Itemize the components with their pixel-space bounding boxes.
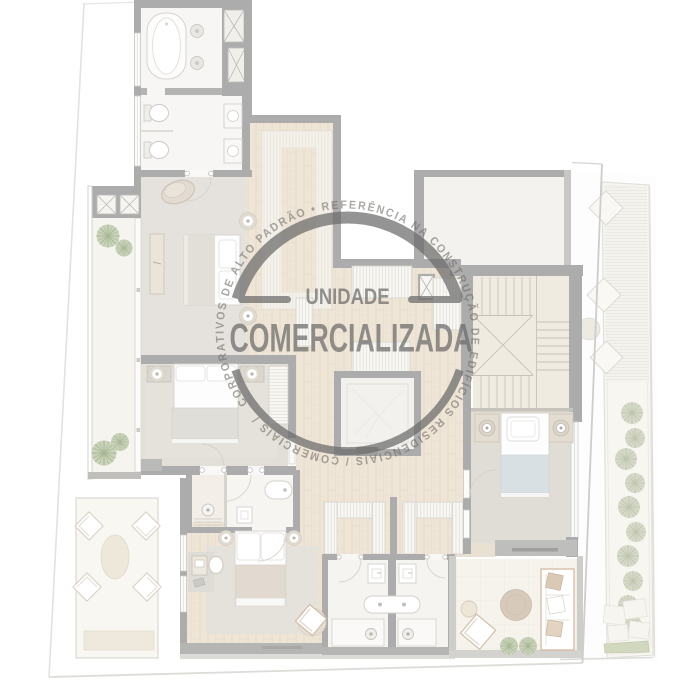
svg-text:COMERCIALIZADA: COMERCIALIZADA <box>230 317 473 361</box>
svg-text:UNIDADE: UNIDADE <box>306 284 390 309</box>
